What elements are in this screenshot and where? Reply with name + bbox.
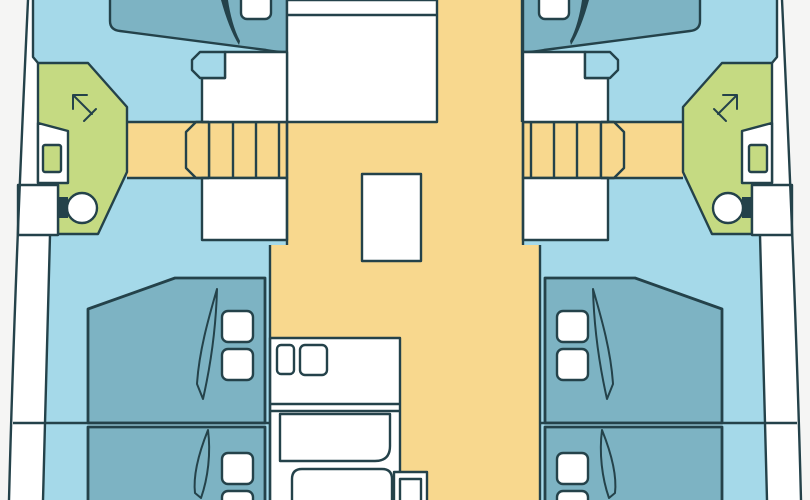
- galley-counter: [280, 414, 390, 461]
- starboard-sink: [749, 145, 767, 172]
- starboard-toilet: [713, 193, 743, 223]
- pillow: [241, 0, 271, 19]
- pillow: [222, 453, 253, 484]
- starboard-stair-landing: [601, 122, 624, 178]
- port-dresser-aft: [202, 178, 287, 240]
- port-step-box: [192, 52, 225, 78]
- forward-corridor: [437, 0, 522, 122]
- salon-table: [362, 174, 421, 261]
- starboard-stairway: [523, 122, 624, 178]
- port-stair-landing: [186, 122, 209, 178]
- starboard-stair-treads: [523, 122, 601, 178]
- pillow: [557, 311, 588, 342]
- pillow: [539, 0, 569, 19]
- floor-plan-canvas: [0, 0, 810, 500]
- port-sink: [43, 145, 61, 172]
- pillow: [557, 349, 588, 380]
- galley-sink-large: [300, 345, 327, 375]
- port-hull-locker: [18, 185, 58, 235]
- pillow: [222, 491, 253, 500]
- galley-sink-small: [277, 345, 294, 374]
- pillow: [557, 491, 588, 500]
- galley-island: [292, 469, 392, 500]
- pillow: [222, 311, 253, 342]
- pillow: [222, 349, 253, 380]
- port-stair-treads: [209, 122, 287, 178]
- catamaran-floor-plan: [0, 0, 810, 500]
- port-toilet: [67, 193, 97, 223]
- starboard-step-box: [585, 52, 618, 78]
- forward-cabin-berth: [287, 0, 437, 122]
- starboard-hull-locker: [752, 185, 792, 235]
- pillow: [557, 453, 588, 484]
- starboard-dresser-aft: [523, 178, 608, 240]
- port-stairway: [186, 122, 287, 178]
